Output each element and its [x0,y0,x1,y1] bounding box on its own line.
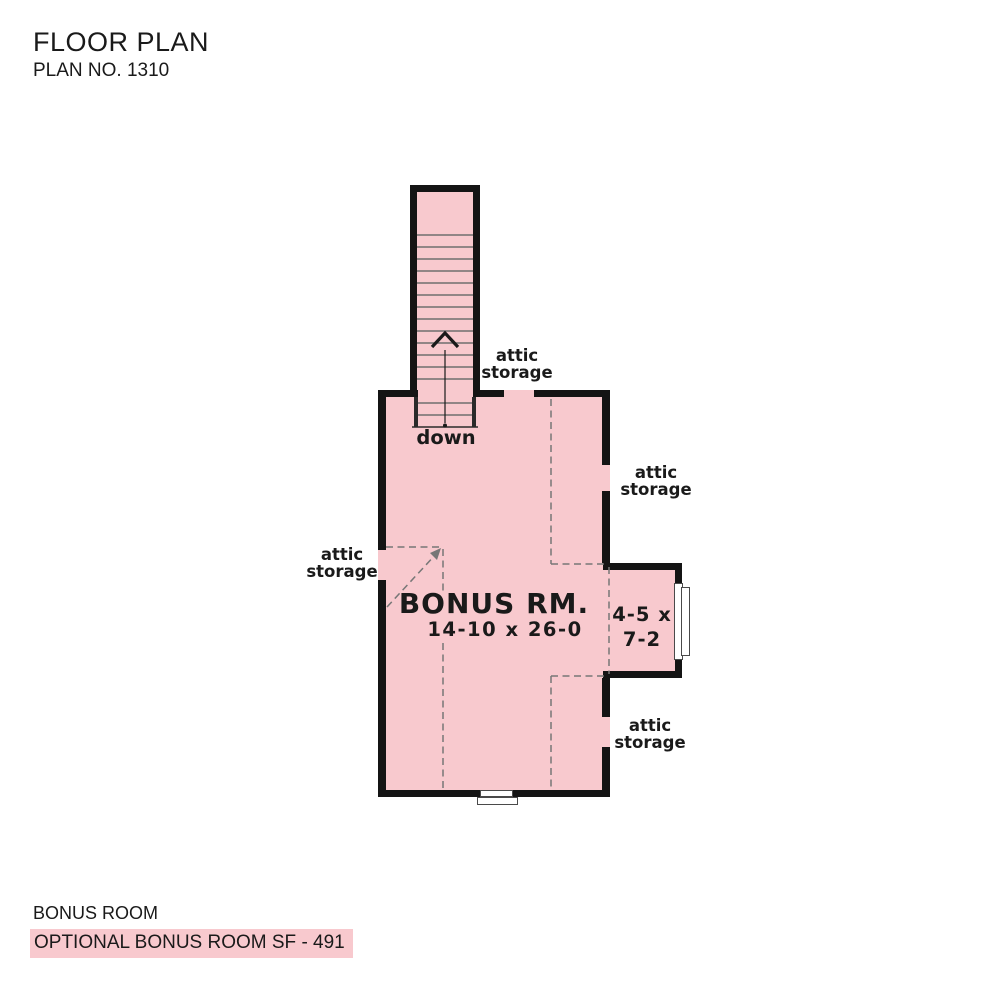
bonus-room-dimensions: 14-10 x 26-0 [427,618,582,641]
floor-plan-drawing: attic storage attic storage attic storag… [0,0,1000,985]
attic-storage-label-left-line2: storage [306,562,377,581]
bonus-room-name: BONUS RM. [399,587,589,620]
attic-storage-label-top-line2: storage [481,363,552,382]
alcove-window [675,584,690,660]
alcove-dimensions-line1: 4-5 x [612,603,672,626]
bottom-window [478,791,518,805]
footer-area-note: OPTIONAL BONUS ROOM SF - 491 [30,929,353,958]
floor-plan-page: FLOOR PLAN PLAN NO. 1310 [0,0,1000,985]
attic-storage-label-right-upper-line2: storage [620,480,691,499]
footer-block: BONUS ROOM OPTIONAL BONUS ROOM SF - 491 [30,903,353,958]
footer-room-name: BONUS ROOM [33,903,353,924]
stairs-down-label: down [416,426,475,449]
attic-storage-label-right-lower-line2: storage [614,733,685,752]
alcove-dimensions-line2: 7-2 [623,628,661,651]
